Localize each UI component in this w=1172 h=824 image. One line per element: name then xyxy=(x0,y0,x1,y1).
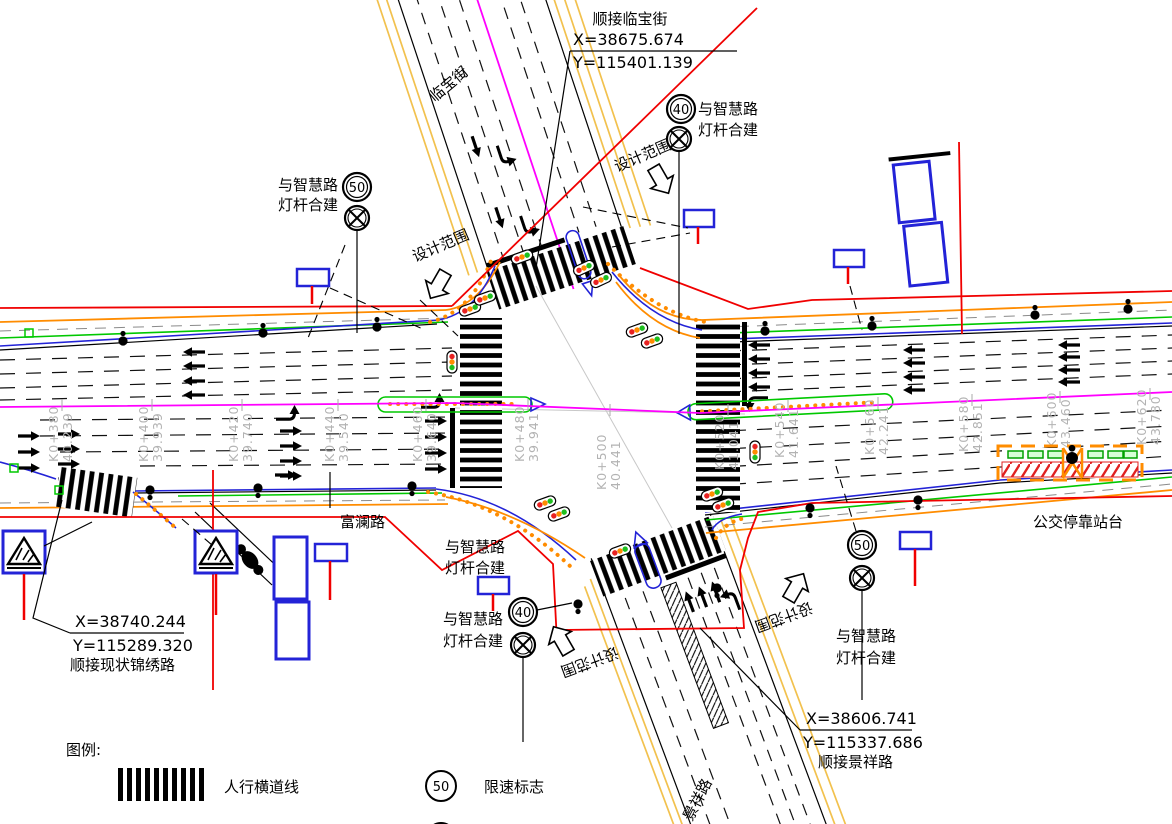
svg-text:K0+460: K0+460 xyxy=(410,406,425,462)
svg-text:与智慧路: 与智慧路 xyxy=(698,100,758,118)
svg-text:40.441: 40.441 xyxy=(608,440,623,490)
plan-canvas: K0+380 40.239 K0+400 39.939 K0+420 39.74… xyxy=(0,0,1172,824)
svg-text:K0+500: K0+500 xyxy=(594,434,609,490)
svg-text:X=38675.674: X=38675.674 xyxy=(573,30,684,49)
callout-southwest: X=38740.244 Y=115289.320 顺接现状锦绣路 xyxy=(33,500,193,674)
svg-text:Y=115337.686: Y=115337.686 xyxy=(802,733,923,752)
svg-text:50: 50 xyxy=(349,181,366,196)
bus-stop-platform xyxy=(998,445,1142,480)
svg-text:K0+400: K0+400 xyxy=(136,406,151,462)
bus-stop-label: 公交停靠站台 xyxy=(1033,513,1123,531)
svg-text:与智慧路: 与智慧路 xyxy=(445,538,505,556)
svg-text:40.239: 40.239 xyxy=(60,412,75,462)
svg-text:50: 50 xyxy=(433,780,450,795)
svg-text:K0+580: K0+580 xyxy=(956,396,971,452)
svg-text:K0+620: K0+620 xyxy=(1134,389,1149,445)
svg-text:42.241: 42.241 xyxy=(876,405,891,455)
svg-text:X=38606.741: X=38606.741 xyxy=(806,709,917,728)
svg-text:K0+420: K0+420 xyxy=(226,406,241,462)
stop-line-west xyxy=(450,408,455,488)
svg-text:39.941: 39.941 xyxy=(526,412,541,462)
stop-line-east xyxy=(742,322,747,406)
callout-north: 顺接临宝街 X=38675.674 Y=115401.139 xyxy=(536,10,737,268)
svg-text:顺接现状锦绣路: 顺接现状锦绣路 xyxy=(70,656,175,674)
warning-triangle-signs xyxy=(3,519,237,620)
svg-text:顺接景祥路: 顺接景祥路 xyxy=(818,753,893,771)
svg-text:与智慧路: 与智慧路 xyxy=(278,176,338,194)
lane-arrows-east-section xyxy=(745,340,1081,412)
svg-text:39.939: 39.939 xyxy=(150,412,165,462)
svg-text:43.460: 43.460 xyxy=(1058,398,1073,448)
svg-text:K0+480: K0+480 xyxy=(512,406,527,462)
road-plan-drawing: K0+380 40.239 K0+400 39.939 K0+420 39.74… xyxy=(0,0,1172,824)
svg-text:灯杆合建: 灯杆合建 xyxy=(445,559,505,577)
svg-text:41.641: 41.641 xyxy=(786,408,801,458)
legend: 图例: 人行横道线 50 限速标志 xyxy=(66,741,544,824)
svg-text:灯杆合建: 灯杆合建 xyxy=(278,196,338,214)
legend-title: 图例: xyxy=(66,741,101,759)
legend-crosswalk-label: 人行横道线 xyxy=(224,778,299,796)
svg-text:K0+600: K0+600 xyxy=(1044,392,1059,448)
median-island-south xyxy=(661,582,729,728)
svg-text:39.640: 39.640 xyxy=(424,412,439,462)
svg-text:K0+380: K0+380 xyxy=(46,406,61,462)
road-name-south: 景祥路 xyxy=(679,776,715,824)
legend-crosswalk-symbol xyxy=(118,768,204,801)
svg-text:灯杆合建: 灯杆合建 xyxy=(443,632,503,650)
svg-text:K0+520: K0+520 xyxy=(712,414,727,470)
road-name-north: 临宝街 xyxy=(426,63,472,106)
svg-text:富澜路: 富澜路 xyxy=(340,513,385,531)
svg-text:39.540: 39.540 xyxy=(336,412,351,462)
svg-text:40: 40 xyxy=(673,103,690,118)
centerline-main xyxy=(0,392,1172,413)
svg-text:设计范围: 设计范围 xyxy=(752,598,815,635)
legend-speed-label: 限速标志 xyxy=(484,778,544,796)
svg-text:41.041: 41.041 xyxy=(726,420,741,470)
svg-text:K0+540: K0+540 xyxy=(772,402,787,458)
svg-text:K0+440: K0+440 xyxy=(322,406,337,462)
colight-label-southwest: 与智慧路 灯杆合建 xyxy=(445,538,505,577)
svg-text:Y=115289.320: Y=115289.320 xyxy=(72,636,193,655)
svg-text:40: 40 xyxy=(515,606,532,621)
svg-text:50: 50 xyxy=(854,539,871,554)
road-name-main: 富澜路 xyxy=(330,472,385,531)
svg-text:与智慧路: 与智慧路 xyxy=(836,627,896,645)
svg-text:顺接临宝街: 顺接临宝街 xyxy=(592,10,667,28)
svg-text:灯杆合建: 灯杆合建 xyxy=(836,649,896,667)
svg-text:K0+560: K0+560 xyxy=(862,399,877,455)
billboard-northeast xyxy=(888,151,963,287)
svg-text:灯杆合建: 灯杆合建 xyxy=(698,121,758,139)
svg-text:Y=115401.139: Y=115401.139 xyxy=(572,53,693,72)
svg-text:设计范围: 设计范围 xyxy=(410,226,472,266)
svg-text:与智慧路: 与智慧路 xyxy=(443,610,503,628)
sign-speed40-south: 40 与智慧路 灯杆合建 xyxy=(443,598,572,742)
design-scope-northeast: 设计范围 xyxy=(583,136,690,247)
billboard-southwest xyxy=(274,537,309,659)
svg-text:42.851: 42.851 xyxy=(970,402,985,452)
svg-text:X=38740.244: X=38740.244 xyxy=(75,612,186,631)
svg-text:43.780: 43.780 xyxy=(1148,395,1163,445)
svg-text:39.740: 39.740 xyxy=(240,412,255,462)
crosswalk-far-west xyxy=(55,467,138,517)
